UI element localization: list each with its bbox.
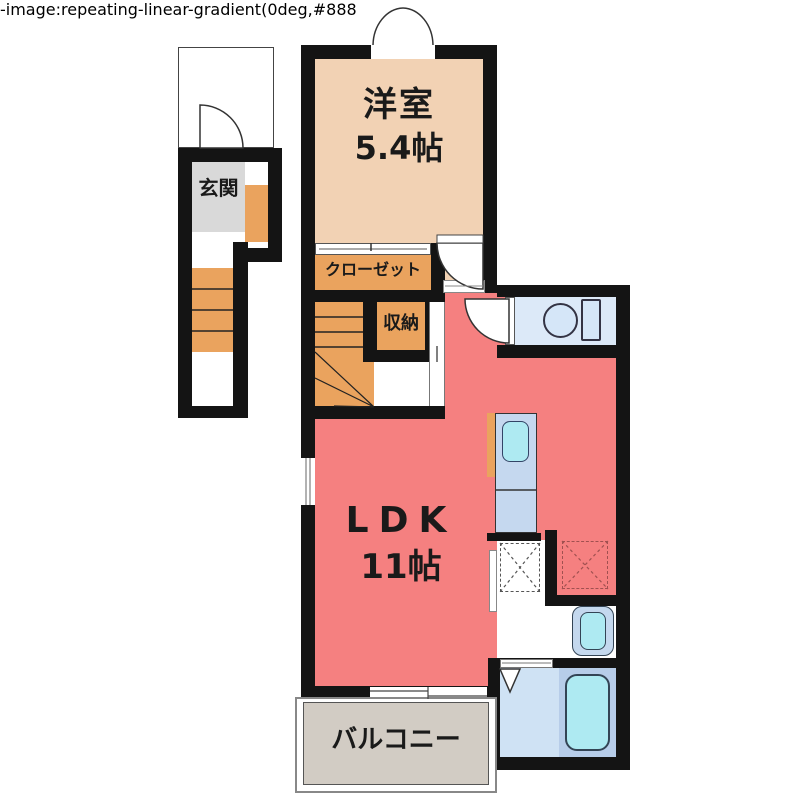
wall (301, 406, 445, 419)
porch-tile-area (178, 47, 274, 148)
entrance-label: 玄関 (192, 178, 245, 199)
double-window-opening (371, 45, 435, 59)
toilet-tank (581, 299, 601, 341)
toilet-door (505, 297, 515, 345)
western-room-label: 洋室 (315, 88, 483, 124)
ldk-size: 11帖 (315, 550, 487, 586)
wall (545, 595, 616, 606)
wall (363, 350, 429, 362)
stair-winder-steps (315, 362, 374, 406)
western-room-door-threshold (443, 280, 485, 293)
balcony-label: バルコニー (303, 727, 489, 754)
refrigerator-space (562, 541, 608, 589)
western-room-size: 5.4帖 (315, 132, 483, 166)
closet-label: クローゼット (315, 262, 431, 279)
ldk-window (301, 458, 315, 505)
kitchen-sink (502, 421, 529, 462)
wall (497, 285, 630, 297)
washing-machine-space (500, 543, 540, 592)
wall (497, 345, 630, 358)
floor-plan: -image:repeating-linear-gradient(0deg,#8… (0, 0, 800, 800)
stair-steps (315, 302, 363, 362)
wall (301, 290, 445, 302)
washbasin-bowl (580, 612, 606, 650)
washroom-sliding-door (489, 550, 497, 612)
stair-landing (374, 362, 429, 406)
lower-stair-steps (192, 268, 233, 352)
wall (487, 533, 541, 541)
hall-sliding-door (429, 302, 445, 406)
kitchen-side-panel (487, 413, 495, 477)
bathtub (565, 674, 610, 751)
entrance-step (245, 185, 268, 242)
exterior (497, 45, 630, 285)
closet-sliding-door (315, 243, 431, 255)
wall (545, 530, 557, 598)
storage-label: 収納 (377, 315, 425, 334)
ldk-label: LDK (315, 502, 487, 540)
toilet-bowl (543, 303, 578, 338)
bathroom-door (500, 659, 553, 668)
